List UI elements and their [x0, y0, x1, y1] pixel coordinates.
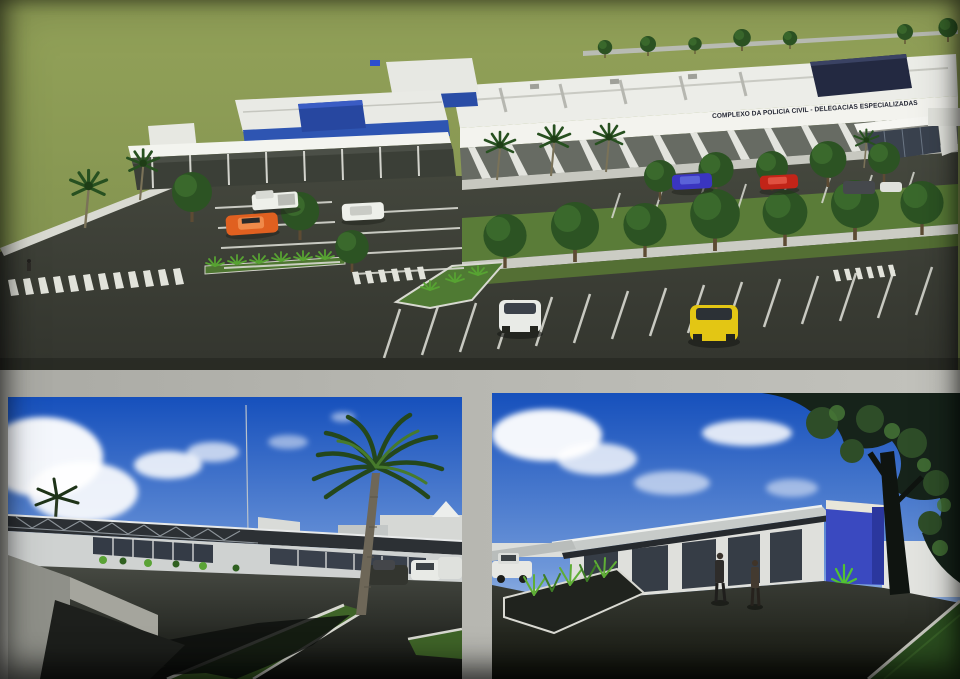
blue-car	[671, 173, 714, 196]
ground-view-left-image	[8, 397, 462, 679]
ground-view-right-image	[492, 393, 960, 679]
side-gate-wall	[928, 108, 960, 126]
white-car-front	[497, 300, 543, 339]
service-vehicle	[370, 60, 380, 66]
white-suv	[341, 202, 386, 226]
rendering-photo: COMPLEXO DA POLICIA CIVIL - DELEGACIAS E…	[0, 0, 960, 679]
pedestrian-crosswalk	[27, 259, 31, 271]
red-car	[759, 174, 800, 196]
aerial-view-image: COMPLEXO DA POLICIA CIVIL - DELEGACIAS E…	[0, 0, 960, 370]
yellow-car-front	[688, 305, 740, 348]
